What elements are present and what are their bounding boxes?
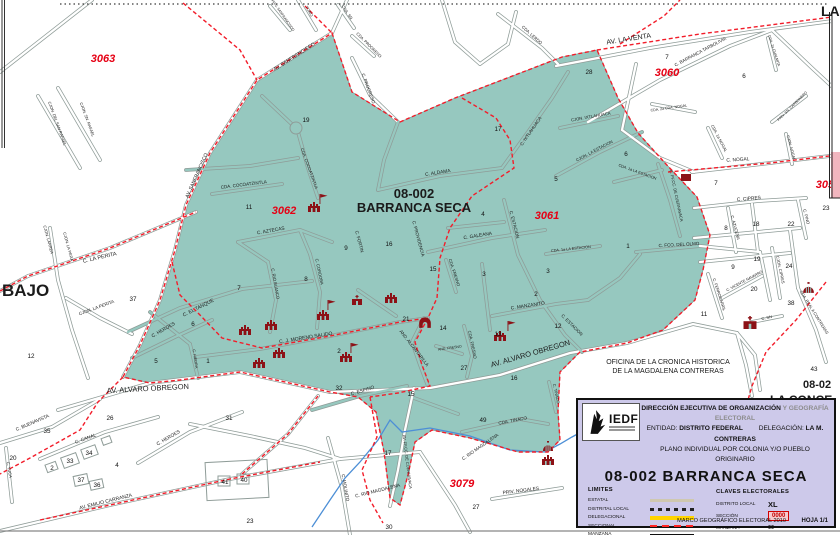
block-number: 17 [494,126,502,133]
block-number: 5 [554,176,558,183]
big-label: 08-002 [394,186,434,201]
section-number: 3063 [91,53,115,65]
block-number: 1 [626,243,630,250]
block-number: 20 [9,455,17,462]
legend-limits: LIMITES ESTATALDISTRITAL LOCALDELEGACION… [588,487,716,535]
block-number: 3 [546,268,550,275]
block-number: 13 [494,331,502,338]
block-number: 27 [472,504,480,511]
block-number: 19 [302,117,310,124]
block-number: 8 [724,225,728,232]
block-number: 4 [481,211,485,218]
block-number: 23 [246,518,254,525]
legend-claves: CLAVES ELECTORALES DISTRITO LOCALXLSECCI… [716,487,826,535]
block-number: 4 [115,462,119,469]
block-number: 12 [554,323,562,330]
block-number: 37 [77,477,85,484]
block-number: 15 [429,266,437,273]
block-number: 16 [510,375,518,382]
block-number: 11 [701,311,708,318]
block-number: 34 [85,450,93,457]
big-label: LA [821,3,840,19]
block-number: 1 [206,358,210,365]
block-number: 49 [479,417,487,424]
section-number: 3060 [655,67,680,79]
block-number: 36 [93,482,101,489]
big-label: BAJO [2,281,49,300]
iedf-logo: IEDF [582,403,640,441]
hoja-label: HOJA 1/1 [802,518,828,524]
block-number: 21 [402,316,410,323]
seccional-swatch [650,525,694,528]
block-number: 38 [787,300,795,307]
map-sheet: AV. SANFRANCISCOAV. SANFRANCISCOC. LA PE… [0,0,840,535]
block-number: 2 [50,465,54,472]
iedf-logo-text: IEDF [609,413,638,425]
block-number: 30 [385,524,393,531]
block-number: 33 [66,458,74,465]
limit-row-manzana: MANZANA [588,530,716,535]
section-number: 3061 [535,210,559,222]
block-number: 6 [624,151,628,158]
legend-title: 08-002 BARRANCA SECA [578,468,834,485]
block-number: 16 [385,241,393,248]
block-number: 26 [106,415,114,422]
block-number: 15 [407,391,415,398]
poi-building-icon [681,174,691,181]
culdesac-circle [290,122,302,134]
big-label: OFICINA DE LA CRONICA HISTORICA [606,359,730,366]
block-number: 5 [154,358,158,365]
limits-title: LIMITES [588,487,716,493]
block-number: 40 [240,477,248,484]
limit-row-distrital: DISTRITAL LOCAL [588,505,716,514]
clave-row-plain: DISTRITO LOCALXL [716,498,826,510]
block-number: 31 [225,415,233,422]
block-number: 20 [750,286,758,293]
big-label: BARRANCA SECA [357,200,472,215]
block-number: 9 [344,245,348,252]
block-number: 11 [246,204,253,211]
block-number: 6 [191,321,195,328]
distrital-swatch [650,508,694,511]
legend-footer: MARCO GEOGRÁFICO ELECTORAL 2010 HOJA 1/1 [578,518,828,524]
block-number: 14 [439,325,447,332]
iedf-eagle-icon [585,407,607,437]
block-number: 9 [731,264,735,271]
block-number: 17 [384,450,392,457]
block-number: 7 [714,180,718,187]
block-number: 41 [221,479,229,486]
legend-plan-line: PLANO INDIVIDUAL POR COLONIA Y/O PUEBLO … [640,445,830,465]
clave-row-manzana: MANZANA00 [716,522,826,534]
block-number: 3 [482,271,486,278]
legend-header: IEDF DIRECCIÓN EJECUTIVA DE ORGANIZACIÓN… [578,400,834,465]
big-label: 08-02 [803,379,831,391]
iedf-logo-rule [609,426,635,428]
block-number: 7 [665,54,669,61]
claves-title: CLAVES ELECTORALES [716,489,826,495]
section-number: 3062 [272,205,296,217]
block-number: 18 [752,221,760,228]
estatal-swatch [650,499,694,502]
legend-entity-line: ENTIDAD: DISTRITO FEDERAL DELEGACIÓN: LA… [640,424,830,444]
block-number: 24 [785,263,793,270]
limit-row-estatal: ESTATAL [588,496,716,505]
block-number: 27 [460,365,468,372]
section-number: 3079 [450,478,475,490]
block-number: 2 [534,291,538,298]
block-number: 7 [237,285,241,292]
block-number: 2 [337,348,341,355]
block-number: 35 [43,428,51,435]
block-number: 23 [822,205,830,212]
block-number: 22 [787,221,795,228]
block-number: 19 [753,256,761,263]
block-number: 43 [810,366,818,373]
marco-geografico-label: MARCO GEOGRÁFICO ELECTORAL 2010 [677,518,786,524]
block-number: 37 [129,296,137,303]
block-number: 12 [27,353,35,360]
block-number: 6 [742,73,746,80]
big-label: DE LA MAGDALENA CONTRERAS [612,368,724,375]
legend-org-line: DIRECCIÓN EJECUTIVA DE ORGANIZACIÓN Y GE… [640,404,830,424]
block-number: 8 [304,276,308,283]
iedf-logo-rule [609,429,635,431]
legend-panel: IEDF DIRECCIÓN EJECUTIVA DE ORGANIZACIÓN… [576,398,836,528]
block-number: 28 [585,69,593,76]
block-number: 32 [335,385,343,392]
